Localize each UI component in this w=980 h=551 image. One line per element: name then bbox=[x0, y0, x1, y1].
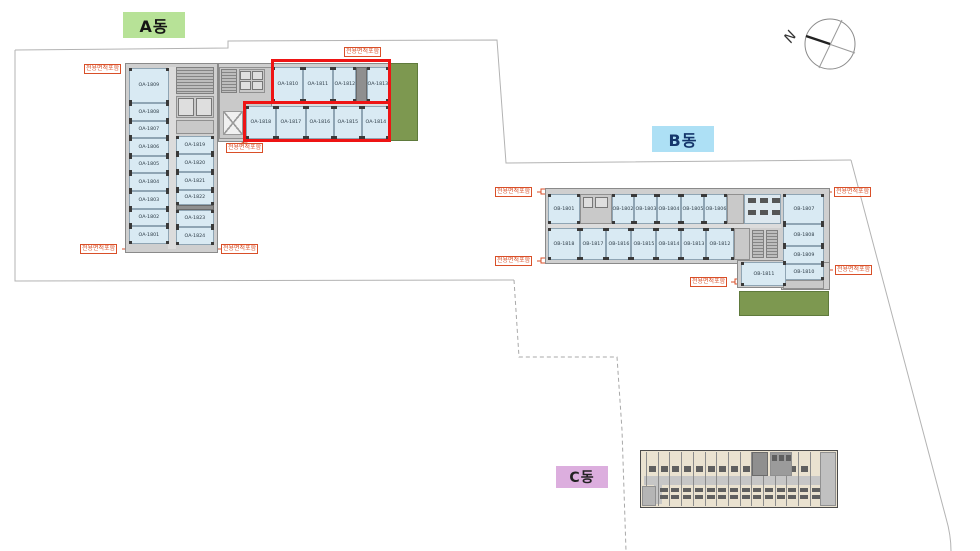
unit-room: OB-1816 bbox=[606, 228, 631, 260]
unit-room: OB-1809 bbox=[783, 246, 824, 264]
column-dot bbox=[548, 228, 551, 231]
boundary-line-right bbox=[851, 160, 951, 551]
room-label: OB-1808 bbox=[793, 233, 814, 238]
column-dot bbox=[704, 194, 707, 197]
furniture-block bbox=[719, 466, 726, 472]
room-label: OA-1805 bbox=[139, 162, 160, 167]
restroom-core bbox=[176, 120, 214, 134]
furniture-block bbox=[695, 488, 703, 492]
room-label: OB-1814 bbox=[658, 242, 679, 247]
partition-line bbox=[798, 452, 799, 506]
room-label: OB-1815 bbox=[633, 242, 654, 247]
column-dot bbox=[724, 194, 727, 197]
column-dot bbox=[606, 257, 609, 260]
unit-room: OB-1811 bbox=[741, 262, 786, 286]
column-dot bbox=[166, 138, 169, 141]
column-dot bbox=[724, 221, 727, 224]
partition-line bbox=[705, 452, 706, 506]
table-block bbox=[772, 210, 780, 215]
unit-room: OA-1808 bbox=[129, 103, 169, 121]
column-dot bbox=[176, 172, 179, 175]
column-dot bbox=[129, 103, 132, 106]
service-core bbox=[734, 228, 750, 260]
column-dot bbox=[731, 257, 734, 260]
furniture-block bbox=[649, 466, 656, 472]
column-dot bbox=[129, 191, 132, 194]
room-label: OB-1810 bbox=[793, 270, 814, 275]
furniture-block bbox=[788, 495, 796, 499]
room-label: OB-1818 bbox=[554, 242, 575, 247]
furniture-block bbox=[753, 488, 761, 492]
stair-core bbox=[752, 230, 764, 258]
column-dot bbox=[211, 136, 214, 139]
area-tag: 전용면적포함 bbox=[80, 244, 117, 254]
furniture-block bbox=[671, 488, 679, 492]
unit-room: OA-1804 bbox=[129, 173, 169, 191]
room-label: OA-1823 bbox=[185, 216, 206, 221]
column-dot bbox=[129, 209, 132, 212]
column-dot bbox=[681, 221, 684, 224]
unit-room: OB-1804 bbox=[657, 194, 681, 224]
column-dot bbox=[211, 210, 214, 213]
column-dot bbox=[166, 68, 169, 71]
unit-room: OB-1818 bbox=[548, 228, 580, 260]
area-tag: 전용면적포함 bbox=[495, 187, 532, 197]
furniture-block bbox=[743, 466, 750, 472]
room-label: OA-1809 bbox=[139, 83, 160, 88]
room-label: OA-1808 bbox=[139, 110, 160, 115]
furniture-block bbox=[708, 466, 715, 472]
compass-north-label: N bbox=[781, 28, 800, 46]
column-dot bbox=[656, 228, 659, 231]
column-dot bbox=[656, 257, 659, 260]
furniture-block bbox=[718, 488, 726, 492]
area-tag: 전용면적포함 bbox=[495, 256, 532, 266]
unit-room: OA-1805 bbox=[129, 156, 169, 173]
column-dot bbox=[211, 190, 214, 193]
column-dot bbox=[612, 221, 615, 224]
room-label: OB-1813 bbox=[683, 242, 704, 247]
furniture-block bbox=[695, 495, 703, 499]
room-label: OB-1804 bbox=[659, 207, 680, 212]
furniture-block bbox=[661, 466, 668, 472]
column-dot bbox=[176, 227, 179, 230]
area-tag: 전용면적포함 bbox=[84, 64, 121, 74]
unit-room: OA-1819 bbox=[176, 136, 214, 154]
table-block bbox=[748, 210, 756, 215]
building-b-grass bbox=[739, 291, 829, 316]
area-tag: 전용면적포함 bbox=[835, 265, 872, 275]
furniture-block bbox=[788, 488, 796, 492]
column-dot bbox=[166, 241, 169, 244]
column-dot bbox=[166, 156, 169, 159]
column-dot bbox=[548, 221, 551, 224]
core-block bbox=[642, 486, 656, 506]
room-label: OA-1803 bbox=[139, 198, 160, 203]
column-dot bbox=[211, 202, 214, 205]
column-dot bbox=[129, 156, 132, 159]
furniture-block bbox=[800, 488, 808, 492]
room-label: OB-1807 bbox=[793, 207, 814, 212]
furniture-block bbox=[765, 495, 773, 499]
room-label: OA-1807 bbox=[139, 127, 160, 132]
column-dot bbox=[783, 194, 786, 197]
column-dot bbox=[634, 221, 637, 224]
elevator-cell bbox=[240, 71, 251, 80]
highlight-box-top-row bbox=[271, 59, 391, 104]
building-b-label: B동 bbox=[652, 126, 714, 152]
furniture-block bbox=[672, 466, 679, 472]
partition-line bbox=[693, 452, 694, 506]
void-canopy bbox=[223, 111, 243, 135]
room-label: OA-1819 bbox=[185, 143, 206, 148]
column-dot bbox=[657, 221, 660, 224]
unit-room: OB-1814 bbox=[656, 228, 681, 260]
unit-room: OB-1807 bbox=[783, 194, 824, 224]
building-a-grass bbox=[390, 63, 418, 141]
column-dot bbox=[211, 227, 214, 230]
core-block bbox=[820, 452, 836, 506]
furniture-block bbox=[660, 488, 668, 492]
column-dot bbox=[166, 173, 169, 176]
column-dot bbox=[166, 103, 169, 106]
core-block bbox=[752, 452, 768, 476]
unit-room: OB-1810 bbox=[783, 264, 824, 280]
room-label: OA-1824 bbox=[185, 234, 206, 239]
column-dot bbox=[821, 264, 824, 267]
unit-room: OA-1821 bbox=[176, 172, 214, 190]
column-dot bbox=[211, 154, 214, 157]
column-dot bbox=[577, 194, 580, 197]
furniture-block bbox=[684, 466, 691, 472]
stair-core bbox=[766, 230, 778, 258]
partition-line bbox=[728, 452, 729, 506]
column-dot bbox=[681, 257, 684, 260]
elevator-cell bbox=[252, 71, 263, 80]
unit-room: OB-1817 bbox=[580, 228, 606, 260]
room-label: OA-1821 bbox=[185, 179, 206, 184]
table-block bbox=[760, 210, 768, 215]
room-label: OB-1817 bbox=[583, 242, 604, 247]
table-block bbox=[760, 198, 768, 203]
column-dot bbox=[211, 172, 214, 175]
furniture-block bbox=[812, 495, 820, 499]
column-dot bbox=[129, 138, 132, 141]
room-label: OB-1801 bbox=[554, 207, 575, 212]
unit-room: OB-1812 bbox=[706, 228, 734, 260]
furniture-block bbox=[707, 495, 715, 499]
column-dot bbox=[580, 257, 583, 260]
service-core bbox=[727, 194, 744, 224]
partition-line bbox=[740, 452, 741, 506]
furniture-block bbox=[742, 495, 750, 499]
table-block bbox=[748, 198, 756, 203]
column-dot bbox=[783, 262, 786, 265]
room-label: OB-1812 bbox=[710, 242, 731, 247]
elevator-cell bbox=[252, 81, 263, 90]
partition-line bbox=[716, 452, 717, 506]
stair-core bbox=[176, 67, 214, 94]
column-dot bbox=[783, 246, 786, 249]
column-dot bbox=[606, 228, 609, 231]
furniture-block bbox=[660, 495, 668, 499]
furniture-block bbox=[683, 488, 691, 492]
area-tag: 전용면적포함 bbox=[344, 47, 381, 57]
column-dot bbox=[548, 257, 551, 260]
column-dot bbox=[657, 194, 660, 197]
unit-room: OB-1805 bbox=[681, 194, 704, 224]
partition-line bbox=[681, 452, 682, 506]
furniture-block bbox=[731, 466, 738, 472]
elevator-cell bbox=[786, 455, 791, 461]
corridor bbox=[168, 67, 176, 249]
unit-room: OB-1802 bbox=[612, 194, 634, 224]
column-dot bbox=[704, 221, 707, 224]
stair-core bbox=[221, 69, 237, 93]
column-dot bbox=[631, 257, 634, 260]
unit-room: OA-1820 bbox=[176, 154, 214, 172]
unit-room: OA-1807 bbox=[129, 121, 169, 138]
unit-room: OB-1815 bbox=[631, 228, 656, 260]
column-dot bbox=[821, 194, 824, 197]
room-label: OA-1801 bbox=[139, 233, 160, 238]
room-label: OB-1806 bbox=[705, 207, 726, 212]
column-dot bbox=[176, 210, 179, 213]
column-dot bbox=[176, 154, 179, 157]
area-tag: 전용면적포함 bbox=[226, 143, 263, 153]
column-dot bbox=[166, 209, 169, 212]
partition-line bbox=[669, 452, 670, 506]
unit-room: OA-1801 bbox=[129, 226, 169, 244]
elevator-cell bbox=[178, 98, 194, 116]
furniture-block bbox=[730, 488, 738, 492]
furniture-block bbox=[683, 495, 691, 499]
elevator-cell bbox=[240, 81, 251, 90]
elevator-cell bbox=[772, 455, 777, 461]
column-dot bbox=[129, 226, 132, 229]
furniture-block bbox=[707, 488, 715, 492]
boundary-line-dashed bbox=[514, 280, 626, 551]
column-dot bbox=[129, 121, 132, 124]
furniture-block bbox=[742, 488, 750, 492]
room-label: OB-1805 bbox=[682, 207, 703, 212]
column-dot bbox=[821, 224, 824, 227]
column-dot bbox=[548, 194, 551, 197]
unit-room: OA-1809 bbox=[129, 68, 169, 103]
building-c-label: C동 bbox=[556, 466, 608, 488]
area-tag: 전용면적포함 bbox=[690, 277, 727, 287]
unit-room: OA-1823 bbox=[176, 210, 214, 227]
furniture-block bbox=[801, 466, 808, 472]
column-dot bbox=[821, 277, 824, 280]
furniture-block bbox=[696, 466, 703, 472]
column-dot bbox=[129, 241, 132, 244]
elevator-cell bbox=[196, 98, 212, 116]
column-dot bbox=[631, 228, 634, 231]
column-dot bbox=[166, 121, 169, 124]
column-dot bbox=[211, 242, 214, 245]
column-dot bbox=[741, 283, 744, 286]
area-tag: 전용면적포함 bbox=[834, 187, 871, 197]
column-dot bbox=[706, 228, 709, 231]
column-dot bbox=[580, 228, 583, 231]
table-block bbox=[772, 198, 780, 203]
unit-room: OB-1813 bbox=[681, 228, 706, 260]
column-dot bbox=[166, 226, 169, 229]
column-dot bbox=[176, 242, 179, 245]
furniture-block bbox=[718, 495, 726, 499]
column-dot bbox=[783, 224, 786, 227]
room-label: OA-1802 bbox=[139, 215, 160, 220]
furniture-block bbox=[800, 495, 808, 499]
unit-room: OA-1802 bbox=[129, 209, 169, 226]
furniture-block bbox=[671, 495, 679, 499]
furniture-block bbox=[812, 488, 820, 492]
room-label: OB-1803 bbox=[635, 207, 656, 212]
column-dot bbox=[176, 202, 179, 205]
unit-room: OA-1822 bbox=[176, 190, 214, 205]
column-dot bbox=[176, 190, 179, 193]
partition-line bbox=[810, 452, 811, 506]
unit-room: OA-1803 bbox=[129, 191, 169, 209]
unit-room: OA-1824 bbox=[176, 227, 214, 245]
furniture-block bbox=[777, 488, 785, 492]
room-label: OA-1806 bbox=[139, 145, 160, 150]
column-dot bbox=[706, 257, 709, 260]
column-dot bbox=[634, 194, 637, 197]
column-dot bbox=[821, 246, 824, 249]
unit-room: OA-1806 bbox=[129, 138, 169, 156]
area-tag: 전용면적포함 bbox=[221, 244, 258, 254]
unit-room: OB-1808 bbox=[783, 224, 824, 246]
room-label: OB-1816 bbox=[608, 242, 629, 247]
column-dot bbox=[612, 194, 615, 197]
building-a-label: A동 bbox=[123, 12, 185, 38]
column-dot bbox=[176, 136, 179, 139]
column-dot bbox=[166, 191, 169, 194]
column-dot bbox=[129, 173, 132, 176]
highlight-box-bottom-row bbox=[243, 101, 391, 142]
elevator-cell bbox=[779, 455, 784, 461]
room-label: OB-1811 bbox=[753, 272, 774, 277]
column-dot bbox=[577, 221, 580, 224]
unit-room: OB-1806 bbox=[704, 194, 727, 224]
room-label: OA-1822 bbox=[185, 195, 206, 200]
room-label: OB-1802 bbox=[613, 207, 634, 212]
unit-room: OB-1803 bbox=[634, 194, 657, 224]
room-label: OA-1820 bbox=[185, 161, 206, 166]
column-dot bbox=[129, 68, 132, 71]
room-label: OB-1809 bbox=[793, 253, 814, 258]
restroom-cell bbox=[583, 197, 593, 208]
service-strip bbox=[783, 280, 824, 289]
furniture-block bbox=[765, 488, 773, 492]
column-dot bbox=[681, 194, 684, 197]
unit-room: OB-1801 bbox=[548, 194, 580, 224]
partition-line bbox=[658, 452, 659, 506]
restroom-cell bbox=[595, 197, 608, 208]
column-dot bbox=[741, 262, 744, 265]
furniture-block bbox=[730, 495, 738, 499]
compass-icon: N bbox=[781, 19, 855, 69]
column-dot bbox=[783, 283, 786, 286]
furniture-block bbox=[753, 495, 761, 499]
furniture-block bbox=[777, 495, 785, 499]
room-label: OA-1804 bbox=[139, 180, 160, 185]
column-dot bbox=[731, 228, 734, 231]
floor-plan-canvas: N OA-1809OA-18 bbox=[0, 0, 980, 551]
column-dot bbox=[681, 228, 684, 231]
